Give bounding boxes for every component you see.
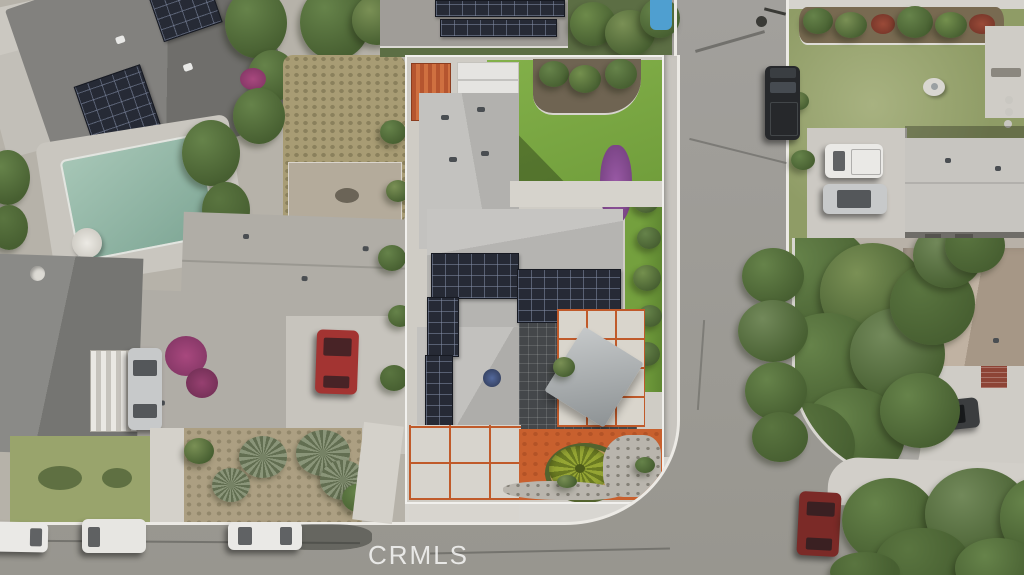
lawn-bush-patch	[102, 468, 132, 488]
bed-plant	[935, 12, 967, 38]
debris-pile	[335, 188, 359, 203]
fan-palm	[212, 468, 250, 502]
scrub-yard	[184, 428, 362, 522]
bed-plant	[803, 8, 833, 34]
solar-array	[427, 297, 459, 357]
streetlight-head	[756, 16, 767, 27]
accent-bush	[557, 475, 577, 488]
fenced-yard	[405, 55, 664, 504]
aerial-neighborhood-photo: CRMLS	[0, 0, 1024, 575]
right-house-roof	[905, 138, 1024, 234]
palm-trunk-top	[575, 464, 585, 473]
accent-bush	[635, 457, 655, 473]
red-car	[315, 329, 359, 394]
streetlight-arm	[764, 7, 786, 15]
bed-plant	[835, 12, 867, 38]
tree	[0, 205, 28, 250]
garden-bush	[569, 65, 601, 93]
lawn-bush-patch	[38, 466, 82, 490]
overhanging-tree	[752, 412, 808, 462]
dark-red-car	[796, 491, 841, 557]
crmls-watermark: CRMLS	[368, 540, 469, 571]
front-lawn-patchy	[10, 436, 158, 522]
silver-car	[823, 184, 887, 214]
parkway-tree	[791, 150, 815, 170]
right-neighborhood-south	[792, 238, 1024, 491]
garden-pot	[1005, 108, 1013, 116]
fence-shrub	[378, 245, 406, 271]
parkway-strip	[662, 55, 677, 457]
tree	[233, 88, 285, 144]
bed-plant	[897, 6, 933, 38]
top-neighbor	[380, 0, 672, 57]
red-flowering-plant	[871, 14, 895, 34]
pool-glimpse	[650, 0, 672, 30]
roof-vent	[183, 62, 194, 72]
large-tree-canopy	[880, 373, 960, 448]
street-crack	[689, 138, 787, 164]
right-neighborhood-north	[786, 0, 1024, 262]
solar-array	[435, 0, 565, 17]
silver-suv	[128, 348, 162, 430]
bougainvillea	[240, 68, 266, 90]
rear-concrete-walk	[510, 181, 663, 207]
fence-shrub	[380, 365, 408, 391]
bougainvillea	[186, 368, 218, 398]
parked-white-car	[0, 521, 48, 552]
garden-pot	[1005, 96, 1013, 104]
overhanging-tree	[742, 248, 804, 304]
black-pickup-truck	[765, 66, 800, 140]
parked-white-car	[228, 522, 302, 550]
skylight-dome	[483, 369, 501, 387]
fence-plant	[637, 227, 661, 249]
white-pickup-truck	[825, 144, 883, 178]
fence-plant	[633, 265, 661, 291]
garden-bush	[605, 59, 637, 89]
left-neighborhood	[0, 0, 405, 525]
parked-white-van	[82, 519, 146, 553]
bush	[184, 438, 214, 464]
solar-array	[440, 19, 557, 37]
roof-vent	[115, 35, 126, 45]
canopy-plant	[553, 357, 575, 377]
overhanging-tree	[738, 300, 808, 362]
brick-pad	[981, 366, 1007, 388]
garden-bush	[539, 61, 569, 87]
street-crack	[697, 320, 705, 410]
front-walkway	[150, 428, 184, 522]
curb	[674, 0, 677, 56]
solar-array	[149, 0, 223, 42]
side-structure	[985, 26, 1024, 118]
solar-array	[431, 253, 519, 299]
birdbath	[923, 78, 945, 96]
tree	[182, 120, 240, 186]
pergola	[519, 323, 557, 427]
subject-property	[405, 55, 680, 525]
fan-palm	[239, 436, 287, 478]
tree	[0, 150, 30, 205]
shed-ridge	[458, 79, 518, 81]
fence-shrub	[380, 120, 406, 144]
streetlight-shadow	[695, 30, 765, 53]
satellite-dish	[30, 266, 45, 281]
patio-umbrella	[72, 228, 102, 258]
solar-array	[425, 355, 453, 429]
